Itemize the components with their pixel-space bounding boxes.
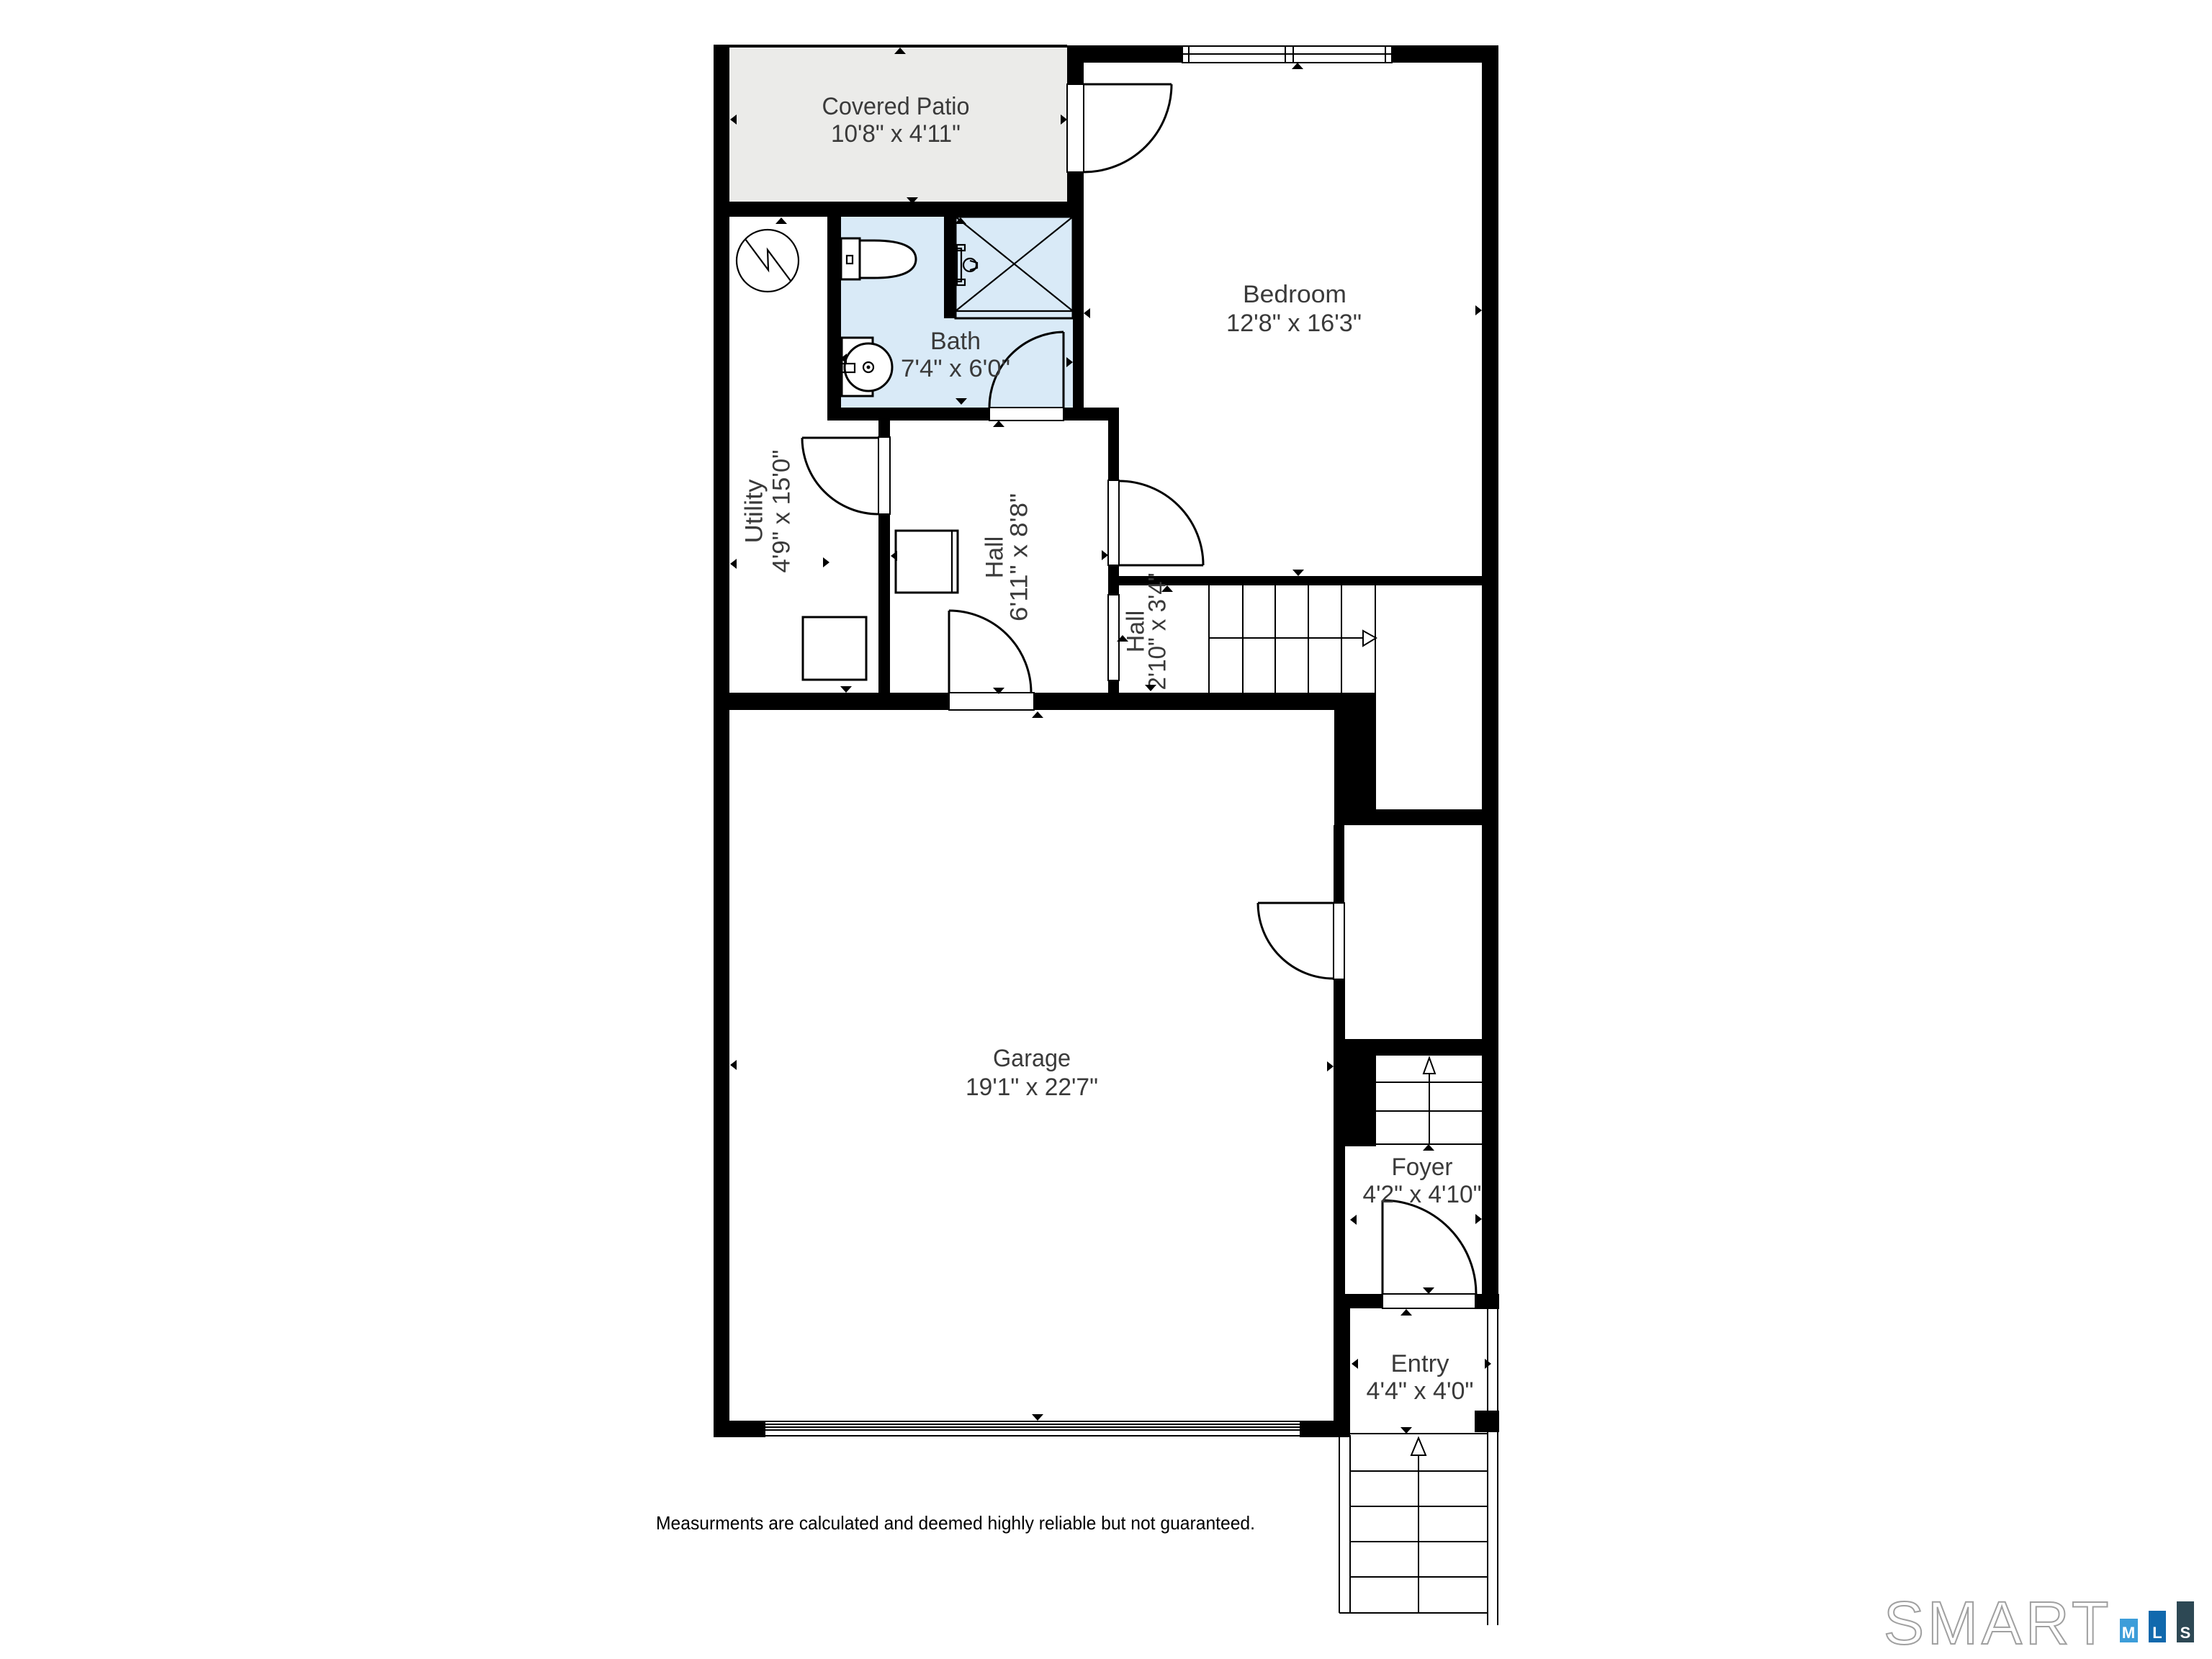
svg-text:Hall: Hall — [981, 536, 1009, 579]
svg-text:Foyer: Foyer — [1392, 1154, 1453, 1181]
svg-text:Garage: Garage — [993, 1045, 1071, 1072]
svg-text:Covered Patio: Covered Patio — [822, 93, 970, 120]
svg-text:Measurments are calculated and: Measurments are calculated and deemed hi… — [656, 1512, 1255, 1534]
svg-text:6'11" x 8'8": 6'11" x 8'8" — [1006, 493, 1033, 621]
svg-text:4'4" x 4'0": 4'4" x 4'0" — [1367, 1377, 1474, 1405]
svg-text:7'4" x 6'0": 7'4" x 6'0" — [901, 355, 1010, 382]
svg-text:Entry: Entry — [1391, 1350, 1449, 1377]
svg-text:19'1" x 22'7": 19'1" x 22'7" — [966, 1074, 1098, 1101]
svg-text:L: L — [2152, 1624, 2162, 1642]
svg-text:SMART: SMART — [1884, 1589, 2112, 1657]
svg-text:4'2" x 4'10": 4'2" x 4'10" — [1363, 1181, 1482, 1208]
svg-text:10'8" x 4'11": 10'8" x 4'11" — [831, 120, 961, 148]
svg-text:Bedroom: Bedroom — [1243, 281, 1346, 308]
svg-text:S: S — [2180, 1624, 2191, 1642]
svg-text:Utility: Utility — [741, 480, 768, 544]
svg-text:Bath: Bath — [930, 328, 981, 355]
svg-text:M: M — [2122, 1624, 2135, 1642]
svg-text:12'8" x 16'3": 12'8" x 16'3" — [1226, 310, 1362, 337]
svg-text:4'9" x 15'0": 4'9" x 15'0" — [768, 450, 796, 573]
